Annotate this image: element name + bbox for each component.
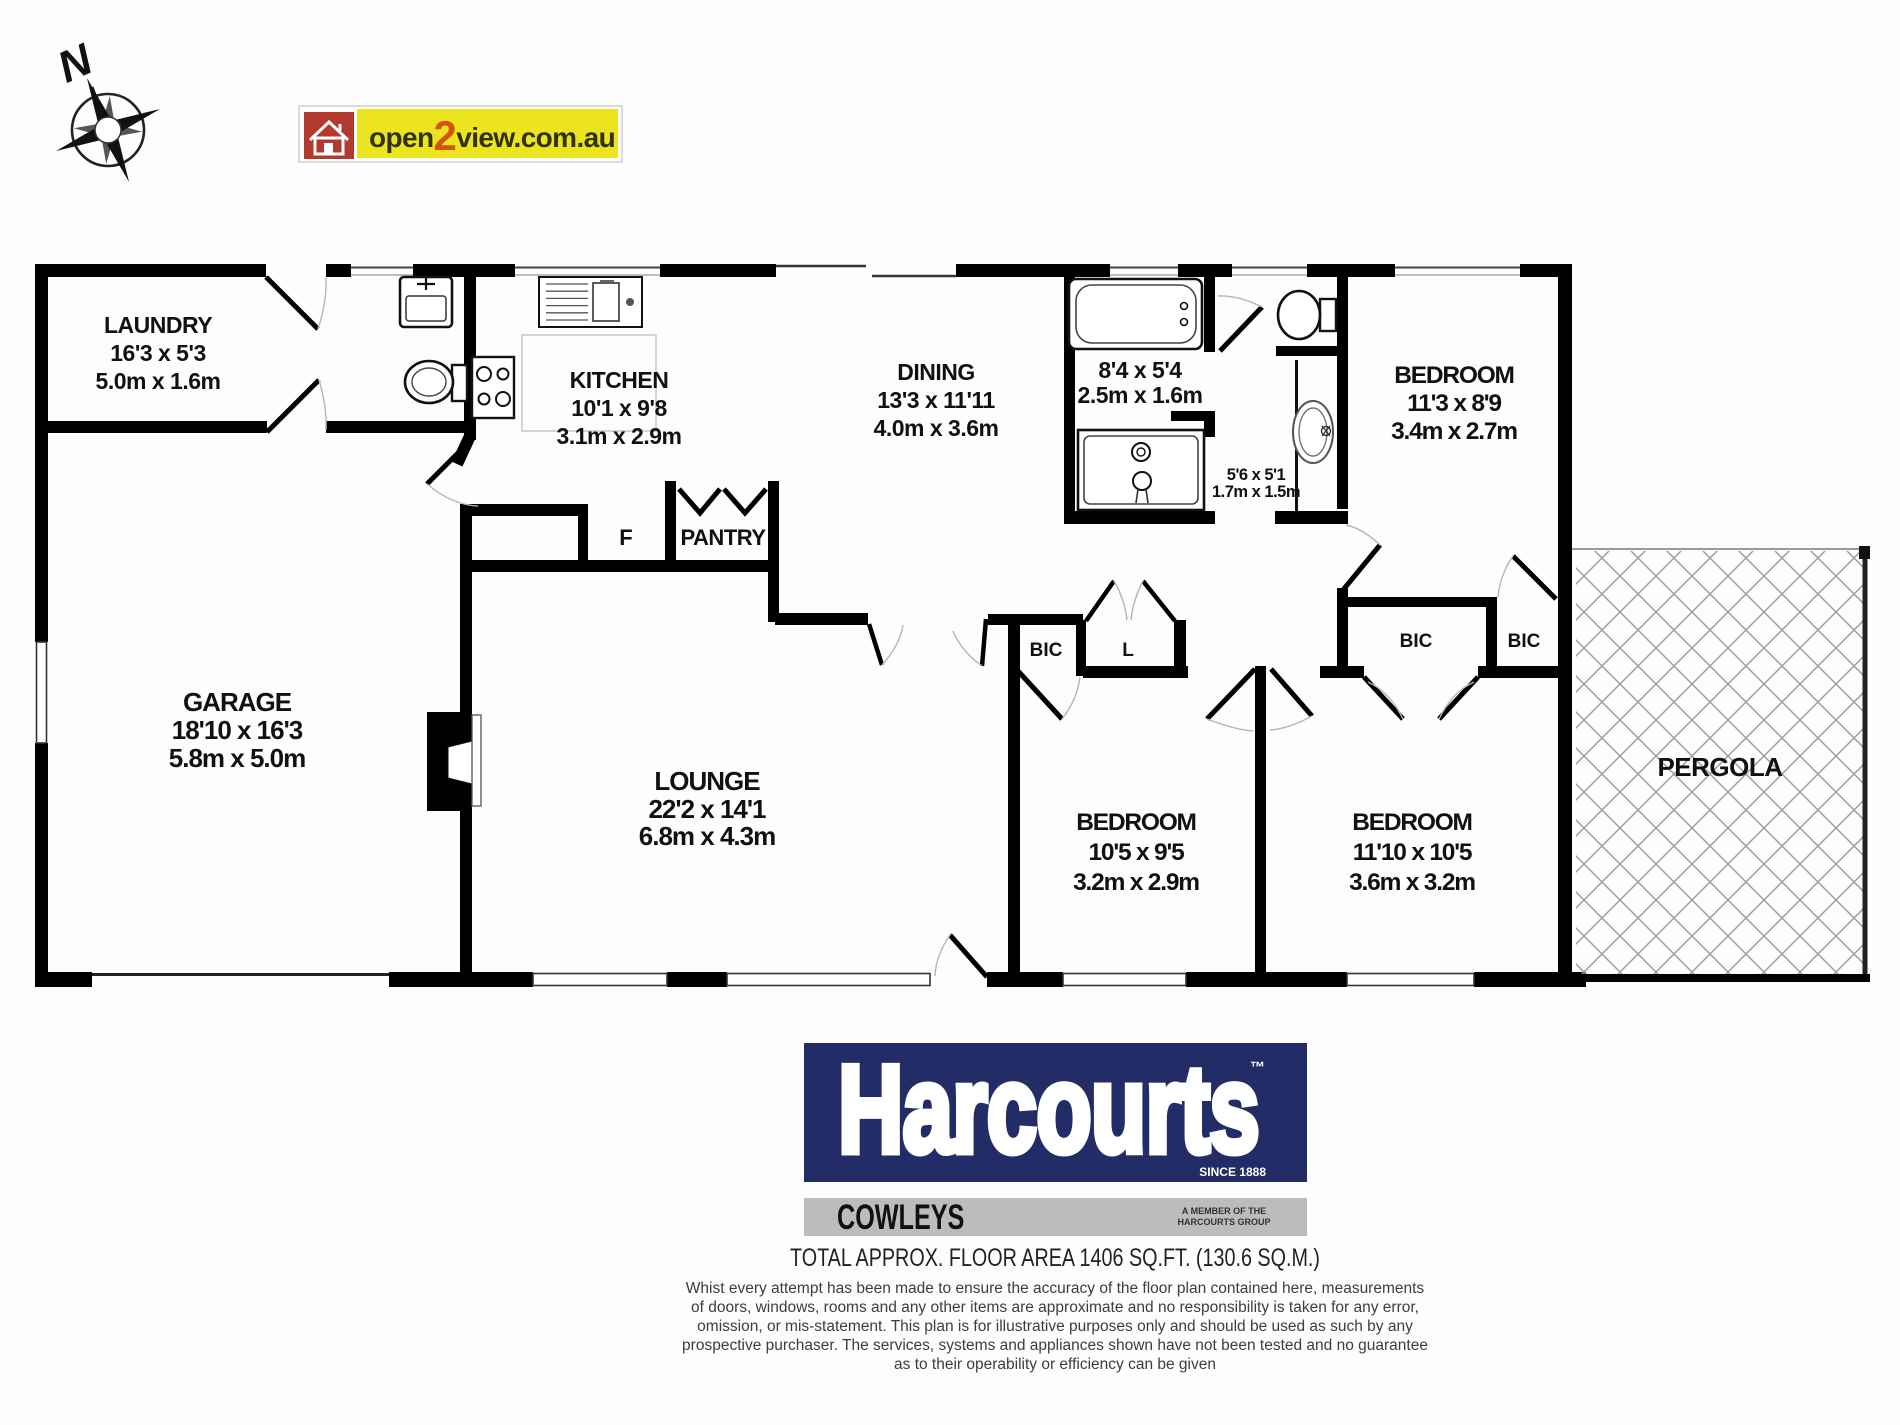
svg-text:5.0m x 1.6m: 5.0m x 1.6m xyxy=(96,368,221,394)
svg-text:4.0m x 3.6m: 4.0m x 3.6m xyxy=(874,415,999,441)
svg-text:A MEMBER OF THE: A MEMBER OF THE xyxy=(1182,1206,1266,1216)
svg-text:16'3 x 5'3: 16'3 x 5'3 xyxy=(110,340,205,366)
svg-text:DINING: DINING xyxy=(897,359,975,385)
svg-text:SINCE 1888: SINCE 1888 xyxy=(1199,1165,1266,1179)
svg-text:LAUNDRY: LAUNDRY xyxy=(104,312,212,338)
svg-text:™: ™ xyxy=(1250,1059,1265,1076)
svg-text:6.8m x 4.3m: 6.8m x 4.3m xyxy=(639,821,775,851)
svg-text:5.8m x 5.0m: 5.8m x 5.0m xyxy=(169,743,305,773)
svg-text:BEDROOM: BEDROOM xyxy=(1394,362,1514,389)
svg-text:3.4m x 2.7m: 3.4m x 2.7m xyxy=(1391,418,1517,445)
svg-text:Whist every attempt has been m: Whist every attempt has been made to ens… xyxy=(686,1280,1425,1297)
svg-text:BEDROOM: BEDROOM xyxy=(1076,809,1196,836)
svg-text:prospective purchaser. The ser: prospective purchaser. The services, sys… xyxy=(682,1337,1428,1354)
svg-text:2.5m x 1.6m: 2.5m x 1.6m xyxy=(1078,382,1203,408)
svg-text:omission, or mis-statement. Th: omission, or mis-statement. This plan is… xyxy=(697,1318,1413,1335)
svg-text:8'4 x 5'4: 8'4 x 5'4 xyxy=(1098,357,1182,383)
svg-text:PERGOLA: PERGOLA xyxy=(1657,752,1783,782)
svg-text:3.2m x 2.9m: 3.2m x 2.9m xyxy=(1073,869,1199,896)
svg-text:BIC: BIC xyxy=(1030,640,1063,661)
svg-text:Harcourts: Harcourts xyxy=(838,1041,1259,1179)
svg-text:10'1 x 9'8: 10'1 x 9'8 xyxy=(571,395,667,421)
svg-text:TOTAL APPROX. FLOOR AREA 1406: TOTAL APPROX. FLOOR AREA 1406 SQ.FT. (13… xyxy=(790,1244,1320,1272)
svg-text:BIC: BIC xyxy=(1400,631,1433,652)
svg-text:18'10 x 16'3: 18'10 x 16'3 xyxy=(172,715,303,745)
svg-text:11'3 x 8'9: 11'3 x 8'9 xyxy=(1407,390,1501,417)
svg-text:COWLEYS: COWLEYS xyxy=(837,1198,964,1237)
svg-text:5'6 x 5'1: 5'6 x 5'1 xyxy=(1227,466,1286,484)
svg-text:22'2 x 14'1: 22'2 x 14'1 xyxy=(648,794,766,824)
svg-text:of doors, windows, rooms and a: of doors, windows, rooms and any other i… xyxy=(691,1299,1419,1316)
svg-text:L: L xyxy=(1122,640,1134,661)
svg-text:1.7m x 1.5m: 1.7m x 1.5m xyxy=(1212,483,1300,501)
svg-text:LOUNGE: LOUNGE xyxy=(654,766,760,796)
svg-text:3.1m x 2.9m: 3.1m x 2.9m xyxy=(557,423,682,449)
svg-text:11'10 x 10'5: 11'10 x 10'5 xyxy=(1353,839,1472,866)
svg-text:GARAGE: GARAGE xyxy=(183,687,292,717)
svg-text:13'3 x 11'11: 13'3 x 11'11 xyxy=(877,387,995,413)
svg-text:HARCOURTS GROUP: HARCOURTS GROUP xyxy=(1177,1217,1270,1227)
svg-text:F: F xyxy=(619,525,632,550)
svg-text:PANTRY: PANTRY xyxy=(681,525,767,550)
svg-text:KITCHEN: KITCHEN xyxy=(570,367,669,393)
svg-text:BIC: BIC xyxy=(1508,631,1541,652)
svg-text:10'5 x 9'5: 10'5 x 9'5 xyxy=(1088,839,1184,866)
svg-text:as to their operability or eff: as to their operability or efficiency ca… xyxy=(894,1356,1216,1373)
svg-text:3.6m x 3.2m: 3.6m x 3.2m xyxy=(1349,869,1475,896)
svg-text:BEDROOM: BEDROOM xyxy=(1352,809,1472,836)
